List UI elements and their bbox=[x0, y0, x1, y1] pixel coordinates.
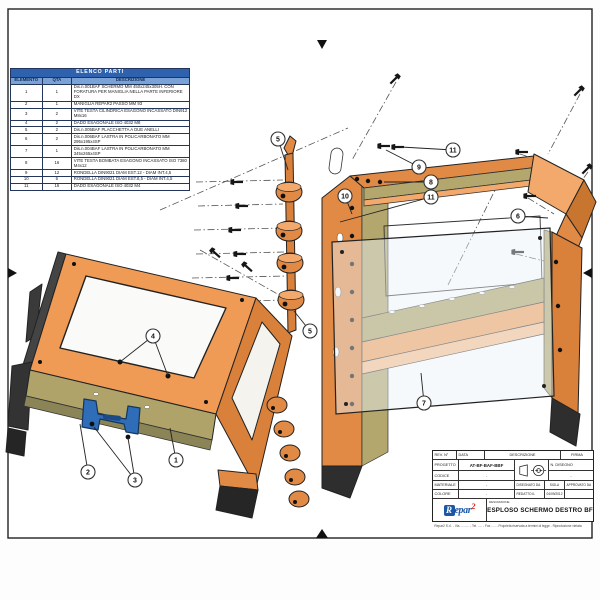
balloon-number: 7 bbox=[422, 400, 426, 407]
drawing-title-area: DESCRIZIONE ESPLOSO SCHERMO DESTRO BF bbox=[487, 499, 593, 521]
cell-descrizione: DADO ESAGONALE ISO 4032 M8 bbox=[72, 120, 190, 127]
cell-descrizione: RONDELLA DIN9021 DIAM EST.12 - DIAM INT.… bbox=[72, 170, 190, 177]
cell-qta: 1 bbox=[42, 101, 72, 108]
parts-table: ELENCO PARTI ELEMENTO QTA DESCRIZIONE 11… bbox=[10, 68, 190, 191]
table-row: 32VITE TESTA CILINDRICA ESAGONO INCASSAT… bbox=[11, 108, 190, 120]
logo-epar-text: epar bbox=[455, 505, 472, 516]
cell-elemento: 11 bbox=[11, 183, 43, 190]
cell-elemento: 5 bbox=[11, 127, 43, 134]
balloon-number: 11 bbox=[427, 194, 435, 201]
approvato-da-label: APPROVATO DA bbox=[565, 481, 593, 490]
progetto-label: PROGETTO bbox=[433, 460, 459, 471]
cell-elemento: 8 bbox=[11, 158, 43, 170]
balloon-number: 6 bbox=[516, 213, 520, 220]
colore-value: - bbox=[459, 490, 515, 499]
cell-descrizione: DADO ESAGONALE ISO 4032 M4 bbox=[72, 183, 190, 190]
drawing-title: ESPLOSO SCHERMO DESTRO BF bbox=[487, 507, 593, 514]
cell-elemento: 2 bbox=[11, 101, 43, 108]
cell-elemento: 9 bbox=[11, 170, 43, 177]
cell-qta: 2 bbox=[42, 127, 72, 134]
balloon-number: 1 bbox=[174, 457, 178, 464]
cell-descrizione: Dis.n.005BAF PLACCHETTA A DUE ANELLI bbox=[72, 127, 190, 134]
rev-label: REV. N° bbox=[433, 451, 457, 460]
cell-descrizione: VITE TESTA CILINDRICA ESAGONO INCASSATO … bbox=[72, 108, 190, 120]
approvato-da-value bbox=[565, 490, 593, 499]
balloon-number: 3 bbox=[133, 477, 137, 484]
first-angle-projection-icon bbox=[516, 461, 548, 480]
desc-col-label: DESCRIZIONE bbox=[485, 451, 561, 460]
title-block: REV. N° DATA DESCRIZIONE FIRMA PROGETTO … bbox=[432, 450, 594, 522]
cell-descrizione: MANIGLIA REPAR2 PASSO MM 93 bbox=[72, 101, 190, 108]
manufacturer-footer-note: Repar2 S.r.l. - Via .......... - Tel. ..… bbox=[420, 524, 596, 528]
balloon-number: 4 bbox=[151, 333, 155, 340]
cell-qta: 2 bbox=[42, 108, 72, 120]
cell-elemento: 6 bbox=[11, 134, 43, 146]
cell-elemento: 7 bbox=[11, 146, 43, 158]
date-label: DATA bbox=[457, 451, 485, 460]
table-row: 62Dis.n.006BAF LASTRA IN POLICARBONATO M… bbox=[11, 134, 190, 146]
balloon-number: 2 bbox=[86, 469, 90, 476]
cell-descrizione: Dis.n.001BAF SCHERMO MM 450x245x305H. CO… bbox=[72, 84, 190, 101]
logo-r-mark: R bbox=[444, 505, 455, 516]
codice-label: CODICE bbox=[433, 471, 459, 481]
redatto-il-label: REDATTO IL bbox=[515, 490, 545, 499]
col-header-descrizione: DESCRIZIONE bbox=[72, 77, 190, 84]
table-row: 11Dis.n.001BAF SCHERMO MM 450x245x305H. … bbox=[11, 84, 190, 101]
cell-qta: 12 bbox=[42, 170, 72, 177]
materiale-value: - bbox=[459, 481, 515, 490]
cell-qta: 2 bbox=[42, 134, 72, 146]
logo-two-superscript: 2 bbox=[471, 501, 475, 511]
drawing-sheet: 4123559118111067 ELENCO PARTI ELEMENTO Q… bbox=[0, 0, 600, 600]
table-row: 52Dis.n.005BAF PLACCHETTA A DUE ANELLI bbox=[11, 127, 190, 134]
table-row: 816VITE TESTA BOMBATA ESAGONO INCASSATO … bbox=[11, 158, 190, 170]
balloon-number: 10 bbox=[341, 193, 349, 200]
balloon-number: 9 bbox=[417, 164, 421, 171]
parts-table-title: ELENCO PARTI bbox=[11, 69, 190, 78]
cell-qta: 16 bbox=[42, 158, 72, 170]
cell-qta: 16 bbox=[42, 183, 72, 190]
redatto-il-value: 04/09/2012 bbox=[545, 490, 565, 499]
cell-descrizione: VITE TESTA BOMBATA ESAGONO INCASSATO ISO… bbox=[72, 158, 190, 170]
polycarbonate-sheet-7 bbox=[332, 228, 554, 414]
materiale-label: MATERIALE bbox=[433, 481, 459, 490]
col-header-elemento: ELEMENTO bbox=[11, 77, 43, 84]
balloon-number: 5 bbox=[276, 136, 280, 143]
colore-label: COLORE bbox=[433, 490, 459, 499]
table-row: 106RONDELLA DIN9021 DIAM EST.8,5 - DIAM … bbox=[11, 176, 190, 183]
sigla-label: SIGLA bbox=[545, 481, 565, 490]
cell-descrizione: Dis.n.006BAF LASTRA IN POLICARBONATO MM … bbox=[72, 134, 190, 146]
cell-elemento: 10 bbox=[11, 176, 43, 183]
cell-elemento: 3 bbox=[11, 108, 43, 120]
codice-value: - bbox=[459, 471, 515, 481]
balloon-number: 11 bbox=[449, 147, 457, 154]
cell-qta: 6 bbox=[42, 176, 72, 183]
table-row: 71Dis.n.004BAF LASTRA IN POLICARBONATO M… bbox=[11, 146, 190, 158]
cell-qta: 2 bbox=[42, 120, 72, 127]
table-row: 912RONDELLA DIN9021 DIAM EST.12 - DIAM I… bbox=[11, 170, 190, 177]
col-header-qta: QTA bbox=[42, 77, 72, 84]
firma-label: FIRMA bbox=[561, 451, 593, 460]
table-row: 42DADO ESAGONALE ISO 4032 M8 bbox=[11, 120, 190, 127]
balloon-number: 8 bbox=[429, 179, 433, 186]
table-row: 1116DADO ESAGONALE ISO 4032 M4 bbox=[11, 183, 190, 190]
progetto-value: AT-BF-BAF-BBF bbox=[459, 460, 515, 471]
n-disegno-value: - bbox=[549, 471, 593, 481]
parts-table-title-row: ELENCO PARTI bbox=[11, 69, 190, 78]
projection-symbol-cell bbox=[515, 460, 549, 481]
cell-qta: 1 bbox=[42, 84, 72, 101]
repar2-logo: Repar2 bbox=[433, 499, 487, 521]
descrizione-small-label: DESCRIZIONE bbox=[489, 500, 510, 504]
cell-descrizione: Dis.n.004BAF LASTRA IN POLICARBONATO MM … bbox=[72, 146, 190, 158]
table-row: 21MANIGLIA REPAR2 PASSO MM 93 bbox=[11, 101, 190, 108]
balloon-number: 5 bbox=[308, 328, 312, 335]
cell-elemento: 1 bbox=[11, 84, 43, 101]
parts-table-body: 11Dis.n.001BAF SCHERMO MM 450x245x305H. … bbox=[11, 84, 190, 190]
parts-table-header-row: ELEMENTO QTA DESCRIZIONE bbox=[11, 77, 190, 84]
disegnato-da-label: DISEGNATO DA bbox=[515, 481, 545, 490]
n-disegno-label: N. DISEGNO bbox=[549, 460, 593, 471]
cell-qta: 1 bbox=[42, 146, 72, 158]
cell-descrizione: RONDELLA DIN9021 DIAM EST.8,5 - DIAM INT… bbox=[72, 176, 190, 183]
cell-elemento: 4 bbox=[11, 120, 43, 127]
